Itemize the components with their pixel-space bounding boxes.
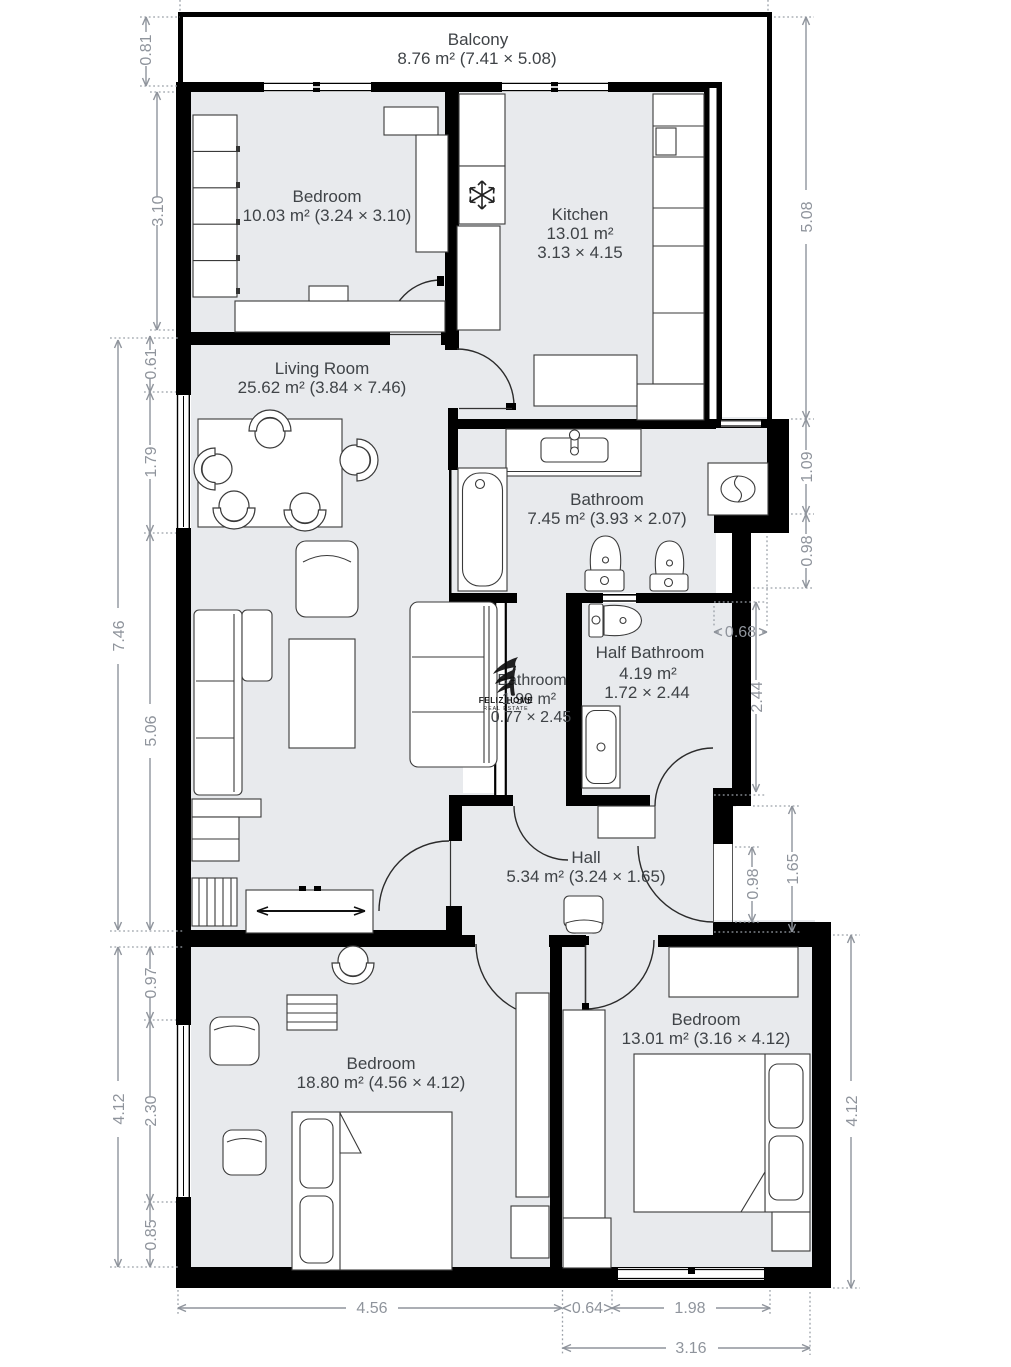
svg-text:Living Room: Living Room: [275, 359, 370, 378]
svg-text:0.61: 0.61: [143, 348, 160, 379]
svg-text:5.34 m² (3.24 × 1.65): 5.34 m² (3.24 × 1.65): [506, 867, 665, 886]
svg-text:5.06: 5.06: [143, 715, 160, 746]
svg-text:1.09: 1.09: [799, 451, 816, 482]
svg-text:4.56: 4.56: [356, 1300, 387, 1317]
svg-text:1.72 × 2.44: 1.72 × 2.44: [604, 683, 690, 702]
svg-text:Bathroom: Bathroom: [570, 490, 644, 509]
svg-text:0.85: 0.85: [143, 1219, 160, 1250]
svg-text:0.98: 0.98: [745, 868, 762, 899]
svg-text:8.76 m² (7.41 × 5.08): 8.76 m² (7.41 × 5.08): [397, 49, 556, 68]
svg-text:Bedroom: Bedroom: [347, 1054, 416, 1073]
svg-text:0.81: 0.81: [138, 34, 155, 65]
svg-text:2.30: 2.30: [143, 1095, 160, 1126]
svg-text:1.65: 1.65: [785, 853, 802, 884]
svg-text:4.12: 4.12: [844, 1095, 861, 1126]
svg-text:1.79: 1.79: [143, 446, 160, 477]
svg-text:3.13 × 4.15: 3.13 × 4.15: [537, 243, 623, 262]
svg-text:5.08: 5.08: [799, 201, 816, 232]
svg-text:4.12: 4.12: [111, 1093, 128, 1124]
svg-text:Balcony: Balcony: [448, 30, 509, 49]
svg-text:Hall: Hall: [571, 848, 600, 867]
svg-text:3.10: 3.10: [150, 195, 167, 226]
svg-text:REAL ESTATE: REAL ESTATE: [483, 706, 528, 712]
svg-text:0.64: 0.64: [572, 1300, 603, 1317]
svg-text:13.01 m² (3.16 × 4.12): 13.01 m² (3.16 × 4.12): [622, 1029, 791, 1048]
svg-text:0.98: 0.98: [799, 535, 816, 566]
svg-text:7.46: 7.46: [111, 620, 128, 651]
svg-text:18.80 m² (4.56 × 4.12): 18.80 m² (4.56 × 4.12): [297, 1073, 466, 1092]
svg-text:7.45 m² (3.93 × 2.07): 7.45 m² (3.93 × 2.07): [527, 509, 686, 528]
svg-text:Kitchen: Kitchen: [552, 205, 609, 224]
svg-text:25.62 m² (3.84 × 7.46): 25.62 m² (3.84 × 7.46): [238, 378, 407, 397]
svg-text:13.01 m²: 13.01 m²: [546, 224, 613, 243]
svg-text:1.98: 1.98: [674, 1300, 705, 1317]
svg-text:Half Bathroom: Half Bathroom: [596, 643, 705, 662]
svg-text:2.44: 2.44: [749, 681, 766, 712]
svg-text:0.97: 0.97: [143, 967, 160, 998]
svg-text:10.03 m² (3.24 × 3.10): 10.03 m² (3.24 × 3.10): [243, 206, 412, 225]
svg-text:Bedroom: Bedroom: [672, 1010, 741, 1029]
svg-text:FELIZ HOME: FELIZ HOME: [479, 696, 534, 705]
svg-text:Bedroom: Bedroom: [293, 187, 362, 206]
svg-text:4.19 m²: 4.19 m²: [619, 664, 677, 683]
svg-text:0.68: 0.68: [725, 624, 756, 641]
svg-text:3.16: 3.16: [675, 1340, 706, 1357]
